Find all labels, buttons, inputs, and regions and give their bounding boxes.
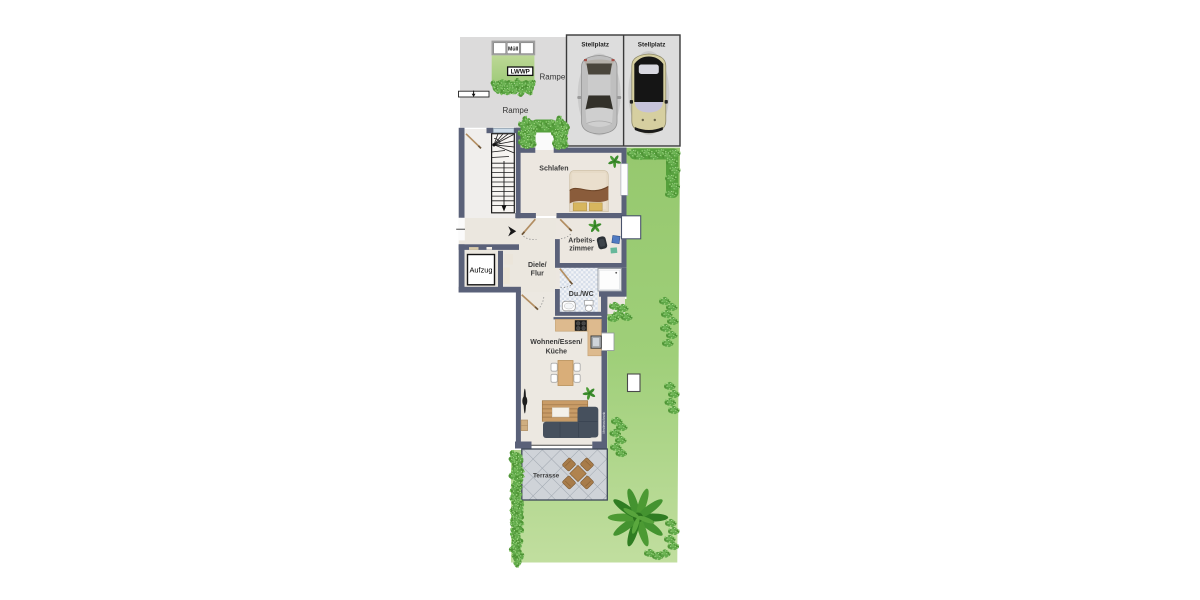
svg-text:Aufzug: Aufzug: [469, 266, 492, 275]
svg-text:Küche: Küche: [546, 348, 568, 355]
svg-text:Arbeits-: Arbeits-: [568, 237, 595, 244]
svg-text:Stellplatz: Stellplatz: [581, 42, 609, 49]
svg-text:LWWP: LWWP: [511, 69, 530, 76]
svg-text:Diele/: Diele/: [528, 262, 547, 269]
svg-text:Terrasse: Terrasse: [533, 472, 560, 479]
svg-text:Schlafen: Schlafen: [539, 166, 568, 173]
svg-text:Stellplatz: Stellplatz: [638, 42, 666, 49]
svg-text:zimmer: zimmer: [569, 246, 594, 253]
svg-text:Medienschrank: Medienschrank: [602, 411, 606, 433]
svg-text:Rampe: Rampe: [540, 73, 566, 82]
svg-text:Du./WC: Du./WC: [569, 291, 594, 298]
svg-text:Flur: Flur: [531, 271, 544, 278]
svg-text:Rampe: Rampe: [503, 106, 529, 115]
svg-text:Wohnen/Essen/: Wohnen/Essen/: [530, 339, 582, 346]
svg-text:Müll: Müll: [508, 47, 519, 53]
